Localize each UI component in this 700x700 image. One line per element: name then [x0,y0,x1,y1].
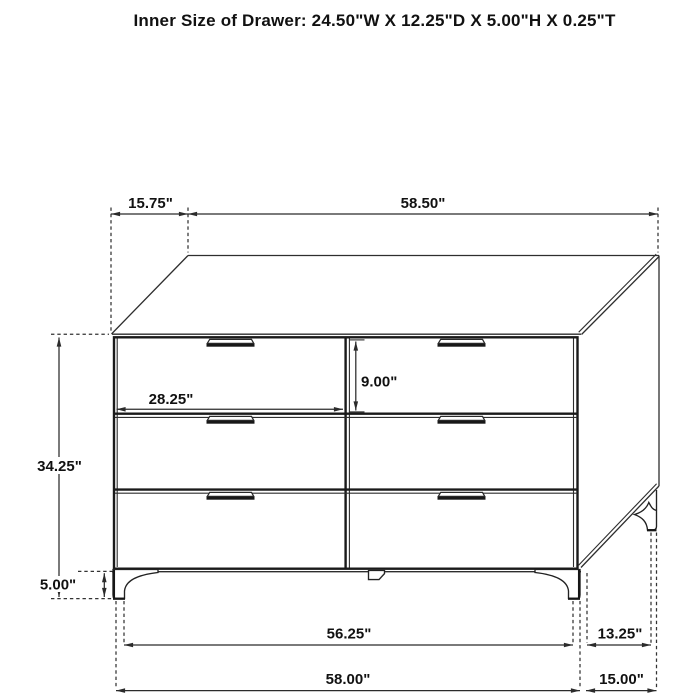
drawer-handle [438,339,486,346]
dim-label-side-leg-span: 13.25" [598,626,643,643]
dresser-dimension-diagram: Inner Size of Drawer: 24.50"W X 12.25"D … [0,0,700,700]
dim-top-width: 58.50" [188,195,658,253]
diagram-drawing: 15.75" 58.50" 34.25" 5.00" 28.25" [0,0,700,700]
dim-side-leg-span: 13.25" [587,626,651,646]
dim-label-leg-height: 5.00" [40,577,76,594]
dim-overall-depth: 15.00" [586,671,657,691]
dim-leg-height: 5.00" [36,571,112,597]
dim-front-leg-span: 56.25" [124,626,573,646]
dim-overall-height: 34.25" [35,334,113,598]
dim-label-overall-width: 58.00" [326,671,371,688]
front-right-leg [535,570,580,599]
top-face [112,256,660,335]
dim-label-overall-height: 34.25" [37,458,82,475]
dim-label-top-depth: 15.75" [128,195,173,212]
front-left-leg [113,570,158,599]
drawer-handle [207,339,255,346]
dim-label-front-leg-span: 56.25" [327,626,372,643]
dim-label-drawer-width: 28.25" [149,391,194,408]
center-support-leg [369,571,385,580]
drawer-handle [207,492,255,499]
dim-overall-width: 58.00" [116,671,580,691]
drawer-handle [438,492,486,499]
drawer-handle [438,416,486,423]
dim-label-top-width: 58.50" [401,195,446,212]
dim-label-drawer-height: 9.00" [361,374,397,391]
dresser-body [112,254,660,599]
dim-label-overall-depth: 15.00" [599,671,644,688]
drawer-handle [207,416,255,423]
